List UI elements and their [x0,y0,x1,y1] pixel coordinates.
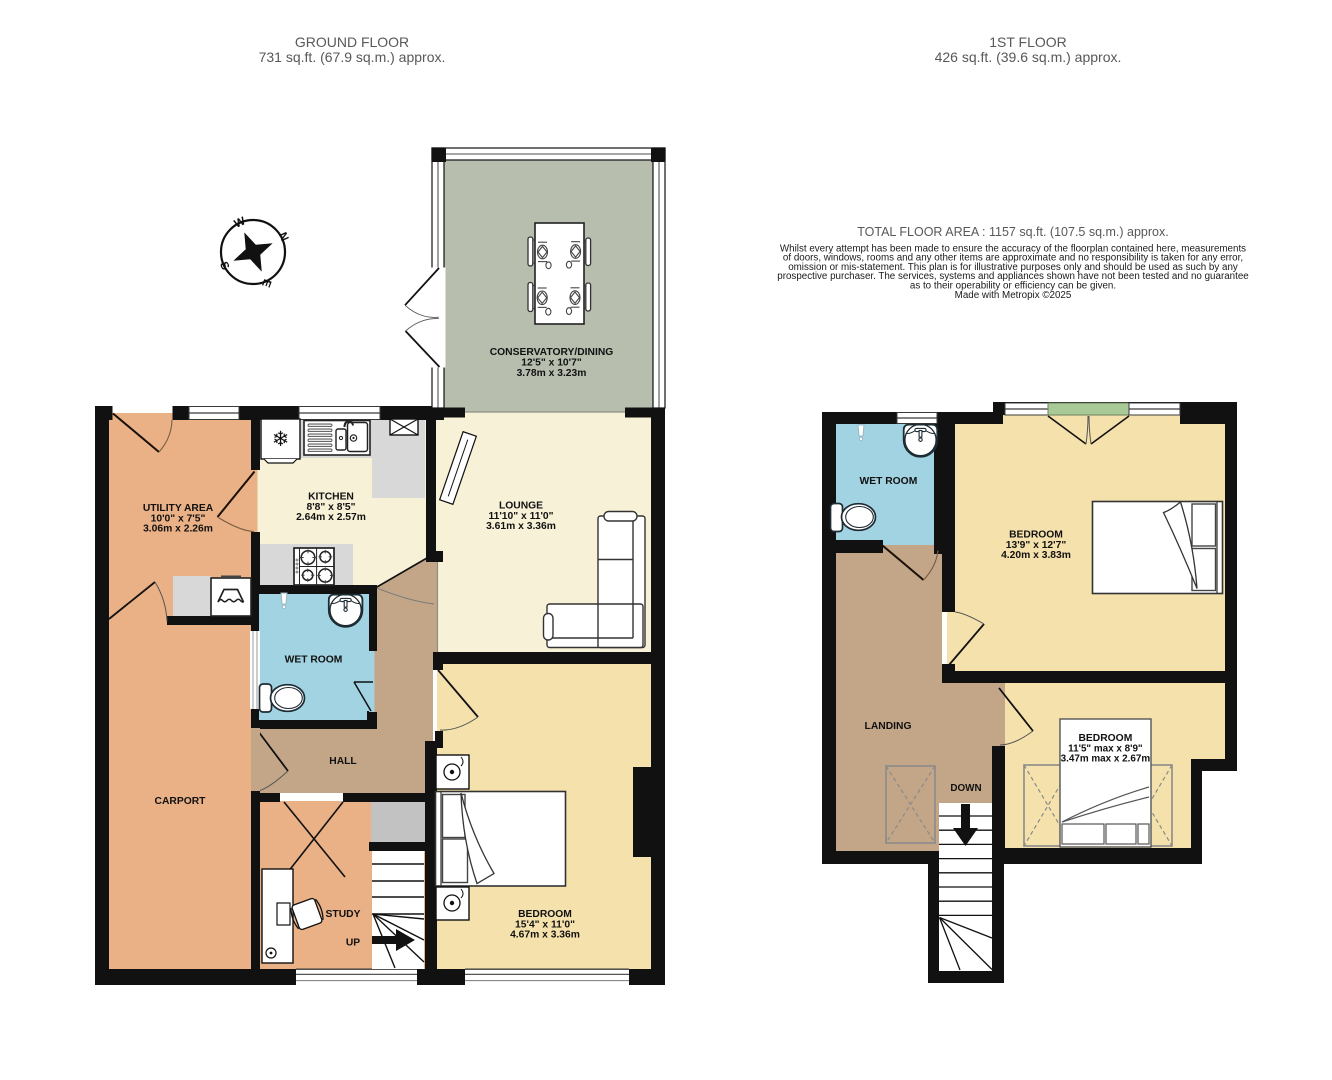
svg-text:3.47m max x 2.67m: 3.47m max x 2.67m [1061,754,1151,765]
svg-text:4.67m x 3.36m: 4.67m x 3.36m [510,930,580,941]
svg-text:DOWN: DOWN [950,783,981,794]
svg-text:3.06m x 2.26m: 3.06m x 2.26m [143,524,213,535]
svg-text:STUDY: STUDY [326,909,361,920]
svg-text:426 sq.ft. (39.6 sq.m.) approx: 426 sq.ft. (39.6 sq.m.) approx. [935,49,1122,65]
svg-text:Made with Metropix ©2025: Made with Metropix ©2025 [955,290,1072,301]
svg-text:1ST FLOOR: 1ST FLOOR [989,34,1067,50]
svg-text:❄: ❄ [272,428,290,451]
svg-text:731 sq.ft. (67.9 sq.m.) approx: 731 sq.ft. (67.9 sq.m.) approx. [259,49,446,65]
svg-text:3.78m x 3.23m: 3.78m x 3.23m [517,368,587,379]
svg-text:UP: UP [346,938,360,949]
svg-text:HALL: HALL [329,756,356,767]
svg-text:WET ROOM: WET ROOM [860,476,918,487]
svg-text:LANDING: LANDING [865,721,912,732]
svg-text:CARPORT: CARPORT [155,796,207,807]
svg-text:4.20m x 3.83m: 4.20m x 3.83m [1001,550,1071,561]
svg-text:2.64m x 2.57m: 2.64m x 2.57m [296,512,366,523]
svg-text:3.61m x 3.36m: 3.61m x 3.36m [486,521,556,532]
svg-text:TOTAL FLOOR AREA : 1157 sq.ft.: TOTAL FLOOR AREA : 1157 sq.ft. (107.5 sq… [857,225,1168,239]
svg-text:GROUND FLOOR: GROUND FLOOR [295,34,409,50]
svg-text:WET ROOM: WET ROOM [285,655,343,666]
